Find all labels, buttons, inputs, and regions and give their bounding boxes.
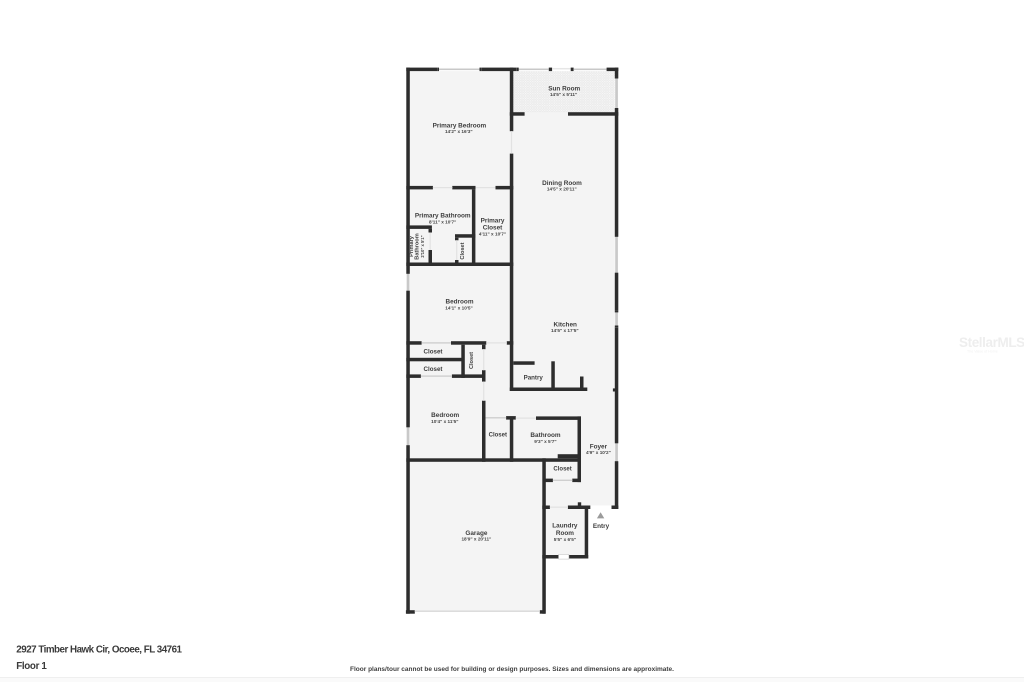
svg-text:Room: Room (556, 530, 574, 537)
svg-text:Closet: Closet (424, 348, 443, 355)
svg-text:5'5" x 6'5": 5'5" x 6'5" (554, 537, 576, 542)
svg-text:Pantry: Pantry (524, 374, 544, 381)
svg-text:Floor 1: Floor 1 (16, 661, 47, 672)
svg-text:8'11" x 10'7": 8'11" x 10'7" (429, 219, 456, 224)
svg-text:14'5" x 5'11": 14'5" x 5'11" (550, 92, 577, 97)
svg-text:14'5" x 20'11": 14'5" x 20'11" (547, 187, 577, 192)
svg-text:14'1" x 10'5": 14'1" x 10'5" (445, 306, 473, 311)
svg-text:StellarMLS: StellarMLS (959, 335, 1024, 350)
svg-text:2'10" x 5'1": 2'10" x 5'1" (420, 235, 425, 257)
svg-text:4'11" x 10'7": 4'11" x 10'7" (479, 231, 506, 236)
svg-text:Entry: Entry (593, 523, 610, 530)
svg-text:2927 Timber Hawk Cir, Ocoee, F: 2927 Timber Hawk Cir, Ocoee, FL 34761 (16, 645, 182, 656)
svg-text:The Value of Home: The Value of Home (967, 349, 998, 353)
svg-text:Closet: Closet (553, 466, 571, 472)
svg-text:4'9" x 10'2": 4'9" x 10'2" (586, 450, 611, 455)
svg-text:Laundry: Laundry (552, 523, 578, 530)
svg-text:18'9" x 20'11": 18'9" x 20'11" (461, 537, 491, 542)
svg-text:Closet: Closet (489, 433, 507, 439)
svg-text:Bedroom: Bedroom (431, 412, 459, 419)
svg-text:Floor plans/tour cannot be use: Floor plans/tour cannot be used for buil… (350, 666, 674, 673)
svg-text:10'4" x 11'5": 10'4" x 11'5" (431, 419, 458, 424)
svg-text:Closet: Closet (460, 242, 466, 259)
svg-text:9'3" x 5'7": 9'3" x 5'7" (534, 439, 556, 444)
svg-text:14'5" x 17'5": 14'5" x 17'5" (551, 328, 579, 333)
svg-text:Closet: Closet (469, 352, 475, 369)
svg-text:14'2" x 16'3": 14'2" x 16'3" (445, 129, 473, 134)
svg-text:Closet: Closet (424, 366, 443, 373)
svg-text:Primary: Primary (481, 218, 505, 225)
